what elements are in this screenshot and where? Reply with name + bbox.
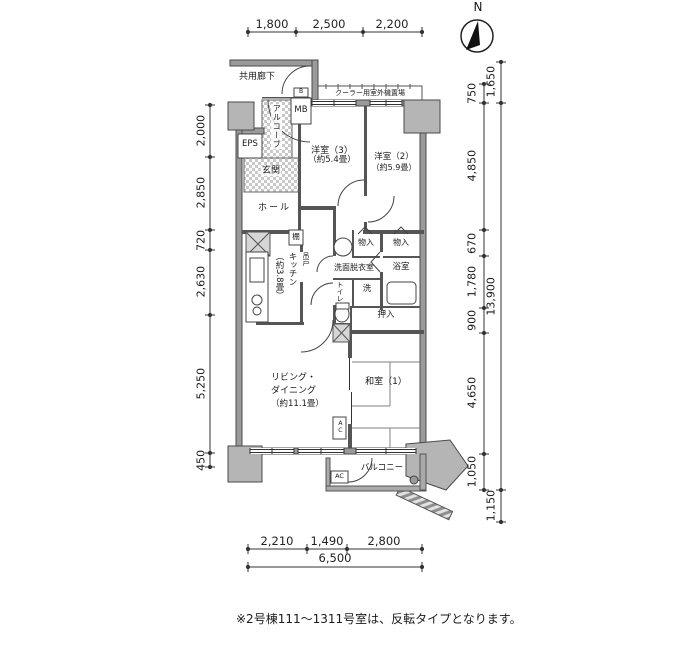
bathroom-label: 浴室: [386, 263, 416, 273]
hall-living-door-arc: [301, 320, 333, 352]
stove-burner: [253, 307, 261, 315]
corridor-label: 共用廊下: [239, 72, 275, 82]
bathtub: [387, 282, 416, 304]
ac-balcony-label: AC: [331, 473, 348, 480]
intercom-label: B: [294, 89, 308, 96]
dim-right-inner-6: 4,650: [467, 378, 480, 408]
bedroom2-size: （約5.9畳）: [366, 163, 422, 172]
dim-left-5: 5,250: [196, 369, 209, 399]
dim-right-inner-5: 900: [467, 305, 480, 335]
dim-left-1: 2,000: [196, 116, 209, 146]
toilet-label: トイレ: [336, 281, 344, 302]
compass-icon: [461, 20, 493, 52]
bedroom3-label: 洋室（3）（約5.4畳）: [301, 146, 363, 166]
balcony-label: バルコニー: [352, 464, 412, 474]
dim-bottom-1: 2,210: [253, 535, 301, 548]
living-line2: ダイニング: [271, 385, 324, 398]
storage-b-label: 物入: [385, 238, 417, 247]
dim-top-3: 2,200: [368, 18, 416, 31]
shelf-label: 棚: [289, 233, 303, 242]
dim-right-inner-3: 670: [467, 228, 480, 258]
bedroom3-door-arc: [338, 180, 364, 206]
bedroom2-name: 洋室（2）: [366, 153, 422, 163]
storage-a-label: 物入: [352, 238, 380, 247]
plan-title: 20450_多摩ニュータウン ファインヒルいなぎ ビュープラザ向陽台_P_3LD…: [185, 622, 515, 650]
balcony-drain: [410, 476, 418, 484]
ac-living-label: AC: [336, 420, 343, 434]
toilet-tank: [336, 303, 349, 309]
living-line1: リビング・: [271, 372, 324, 385]
dim-left-4: 2,630: [196, 267, 209, 297]
closet-label: 押入: [368, 311, 404, 321]
washroom-label: 洗面脱衣室: [334, 263, 374, 272]
angled-wall-strip: [396, 487, 452, 520]
living-size: （約11.1畳）: [271, 398, 324, 411]
cooler-area-label: クーラー用室外機置場: [320, 89, 420, 97]
bedroom2-label: 洋室（2）（約5.9畳）: [366, 153, 422, 172]
sliding-doors: [350, 358, 352, 424]
laundry-label: 洗: [358, 285, 376, 295]
tatami-lines: [352, 362, 420, 448]
dim-right-inner-7: 1,050: [467, 457, 480, 487]
dim-right-inner-1: 750: [467, 78, 480, 108]
dim-top-1: 1,800: [248, 18, 296, 31]
dim-bottom-2: 1,490: [303, 535, 351, 548]
japanese-room-label: 和室（1）: [356, 377, 416, 387]
dim-left-3: 720: [196, 225, 209, 255]
dim-top-2: 2,500: [305, 18, 353, 31]
wash-basin: [334, 238, 352, 256]
entrance-label: 玄関: [261, 166, 281, 176]
compass-north-label: N: [469, 1, 487, 15]
dim-bottom-total: 6,500: [311, 552, 359, 565]
toilet-door-arc: [311, 283, 333, 305]
dim-left-6: 450: [196, 445, 209, 475]
dim-left-2: 2,850: [196, 178, 209, 208]
eps-label: EPS: [238, 140, 262, 150]
mb-label: MB: [291, 106, 311, 116]
dim-right-outer-3: 1,150: [486, 491, 499, 521]
dim-bottom-3: 2,800: [360, 535, 408, 548]
dim-right-inner-2: 4,850: [467, 151, 480, 181]
hall-label: ホール: [258, 203, 291, 213]
dim-right-outer-2: 13,900: [486, 276, 499, 316]
alcove-label: アルコーブ: [271, 104, 282, 149]
kitchen-size: （約3.8畳）: [272, 252, 285, 324]
floor-plan-page: N 1,800 2,500 2,200 2,000 2,850 720 2,63…: [0, 0, 700, 650]
bedroom2-door-arc: [368, 196, 394, 222]
dim-right-inner-4: 1,780: [467, 267, 480, 297]
living-label: リビング・ダイニング（約11.1畳）: [271, 372, 324, 411]
dim-right-outer-1: 1,650: [486, 67, 499, 97]
kitchen-sink: [250, 258, 264, 282]
kitchen-name: キッチン: [285, 252, 298, 324]
washroom-door-arc: [317, 256, 333, 272]
stove-burner: [252, 295, 262, 305]
kitchen-label: キッチン（約3.8畳）: [272, 252, 298, 324]
bedroom3-size: （約5.4畳）: [301, 156, 363, 166]
hanging-cupboard-label: 吊戸: [302, 252, 310, 266]
